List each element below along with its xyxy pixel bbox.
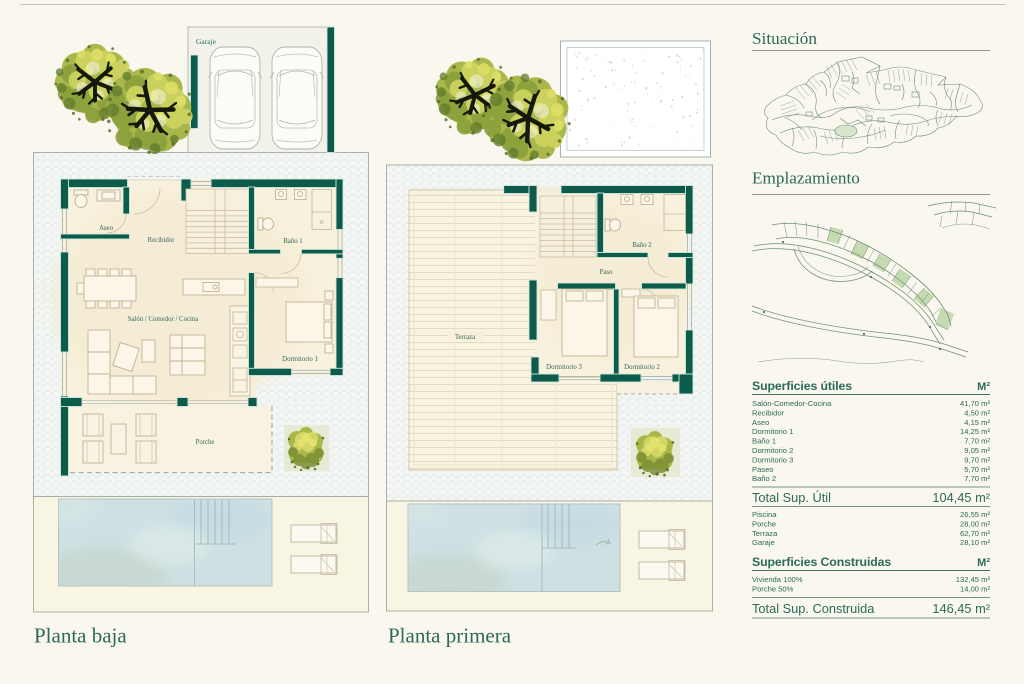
svg-text:5,70 m²: 5,70 m² [964, 465, 990, 474]
svg-text:Superficies útiles: Superficies útiles [752, 379, 852, 393]
svg-text:7,70 m²: 7,70 m² [964, 474, 990, 483]
svg-text:4,50 m²: 4,50 m² [964, 408, 990, 417]
svg-text:14,25 m²: 14,25 m² [960, 427, 990, 436]
svg-text:104,45 m²: 104,45 m² [932, 490, 990, 505]
svg-text:Porche 50%: Porche 50% [752, 584, 794, 593]
svg-text:9,05 m²: 9,05 m² [964, 446, 990, 455]
svg-text:Dormitorio 1: Dormitorio 1 [752, 427, 793, 436]
svg-text:Dormitorio 2: Dormitorio 2 [752, 446, 793, 455]
svg-text:7,70 m²: 7,70 m² [964, 437, 990, 446]
svg-text:Terraza: Terraza [455, 334, 475, 341]
svg-text:Dormitorio 3: Dormitorio 3 [546, 364, 582, 371]
svg-text:Paseo: Paseo [752, 465, 774, 474]
svg-text:132,45 m²: 132,45 m² [956, 575, 991, 584]
svg-text:Garaje: Garaje [752, 538, 775, 547]
svg-text:41,70 m²: 41,70 m² [960, 399, 990, 408]
svg-text:26,55 m²: 26,55 m² [960, 510, 990, 519]
svg-text:Planta baja: Planta baja [34, 624, 127, 648]
svg-text:Porche: Porche [752, 519, 776, 528]
svg-text:M²: M² [977, 381, 990, 393]
svg-text:Dormitorio 3: Dormitorio 3 [752, 455, 793, 464]
svg-text:146,45 m²: 146,45 m² [932, 601, 990, 616]
svg-text:Piscina: Piscina [752, 510, 777, 519]
svg-text:Recibidor: Recibidor [148, 237, 176, 244]
svg-text:Emplazamiento: Emplazamiento [752, 169, 860, 188]
svg-text:28,00 m²: 28,00 m² [960, 519, 990, 528]
svg-text:4,15 m²: 4,15 m² [964, 418, 990, 427]
svg-text:Garaje: Garaje [196, 37, 217, 46]
svg-text:Baño 1: Baño 1 [752, 437, 776, 446]
svg-text:Terraza: Terraza [752, 529, 778, 538]
svg-text:Dormitorio 1: Dormitorio 1 [282, 356, 318, 363]
svg-text:28,10 m²: 28,10 m² [960, 538, 990, 547]
svg-text:Aseo: Aseo [752, 418, 769, 427]
svg-text:Baño 2: Baño 2 [632, 242, 652, 249]
svg-text:Porche: Porche [196, 439, 215, 446]
svg-text:Planta primera: Planta primera [388, 624, 512, 648]
svg-text:Aseo: Aseo [99, 225, 114, 232]
svg-text:9,70 m²: 9,70 m² [964, 455, 990, 464]
svg-text:Baño 2: Baño 2 [752, 474, 776, 483]
svg-text:Total Sup. Construida: Total Sup. Construida [752, 601, 875, 616]
svg-text:Superficies Construidas: Superficies Construidas [752, 555, 891, 569]
svg-text:14,00 m²: 14,00 m² [960, 584, 990, 593]
svg-text:Dormitorio 2: Dormitorio 2 [624, 364, 660, 371]
svg-text:M²: M² [977, 557, 990, 569]
svg-text:Baño 1: Baño 1 [283, 238, 302, 245]
svg-text:Vivienda 100%: Vivienda 100% [752, 575, 803, 584]
svg-text:Recibidor: Recibidor [752, 408, 785, 417]
svg-text:Paso: Paso [600, 269, 613, 276]
svg-text:Salón-Comedor-Cocina: Salón-Comedor-Cocina [752, 399, 832, 408]
svg-text:Salón / Comedor / Cocina: Salón / Comedor / Cocina [128, 316, 199, 323]
svg-text:Situación: Situación [752, 29, 817, 48]
svg-text:62,70 m²: 62,70 m² [960, 529, 990, 538]
svg-text:Total Sup. Útil: Total Sup. Útil [752, 490, 831, 505]
